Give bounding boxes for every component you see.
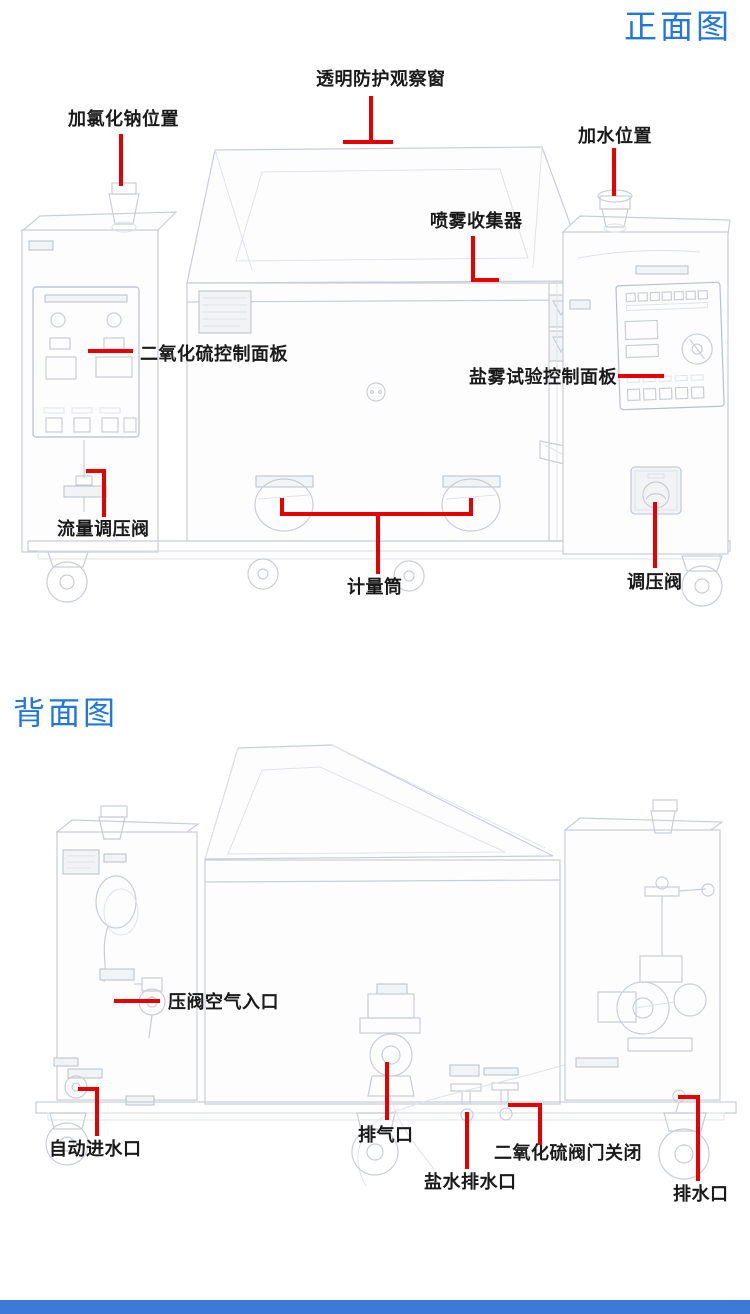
label-nacl-fill-position: 加氯化钠位置 xyxy=(68,110,179,128)
callout-nacl-line xyxy=(119,134,123,186)
callout-drain-line-v xyxy=(696,1095,700,1181)
callout-so2-valve-line-v xyxy=(538,1103,542,1145)
label-spray-collector: 喷雾收集器 xyxy=(430,212,523,230)
label-pressure-regulator-valve: 调压阀 xyxy=(627,573,683,591)
label-exhaust-port: 排气口 xyxy=(358,1126,414,1144)
callout-pressure-valve-line xyxy=(653,502,657,568)
label-air-inlet-valve: 压阀空气入口 xyxy=(168,993,279,1011)
callout-observation-window-line-h xyxy=(343,140,393,144)
front-view-drawing xyxy=(0,0,750,660)
label-measuring-cylinder: 计量筒 xyxy=(347,578,403,596)
label-flow-regulator-valve: 流量调压阀 xyxy=(57,520,150,538)
footer-bar xyxy=(0,1300,750,1314)
back-view-title: 背面图 xyxy=(13,697,118,729)
back-view-drawing xyxy=(0,740,750,1314)
label-auto-water-inlet: 自动进水口 xyxy=(49,1140,142,1158)
label-so2-valve-closed: 二氧化硫阀门关闭 xyxy=(494,1144,642,1162)
label-water-fill-position: 加水位置 xyxy=(578,127,652,145)
front-view-title: 正面图 xyxy=(624,10,732,43)
callout-salt-panel-line xyxy=(618,374,664,378)
callout-water-line xyxy=(612,148,616,196)
callout-flow-valve-line-v xyxy=(102,469,106,517)
label-observation-window: 透明防护观察窗 xyxy=(316,70,446,88)
label-salt-spray-control-panel: 盐雾试验控制面板 xyxy=(469,368,617,386)
callout-exhaust-line xyxy=(385,1062,389,1120)
callout-spray-collector-line-v xyxy=(471,236,475,282)
callout-auto-water-line-v xyxy=(95,1087,99,1136)
label-salt-water-drain: 盐水排水口 xyxy=(424,1173,517,1191)
label-so2-control-panel: 二氧化硫控制面板 xyxy=(140,345,288,363)
callout-spray-collector-line-h xyxy=(471,278,499,282)
callout-air-inlet-line xyxy=(114,999,160,1003)
callout-so2-panel-line xyxy=(88,349,133,353)
callout-observation-window-line-v xyxy=(369,96,373,142)
callout-salt-drain-line xyxy=(465,1112,469,1169)
callout-measuring-cylinder-stem xyxy=(376,512,380,574)
label-drain-port: 排水口 xyxy=(673,1185,729,1203)
callout-so2-valve-line-h xyxy=(508,1103,542,1107)
